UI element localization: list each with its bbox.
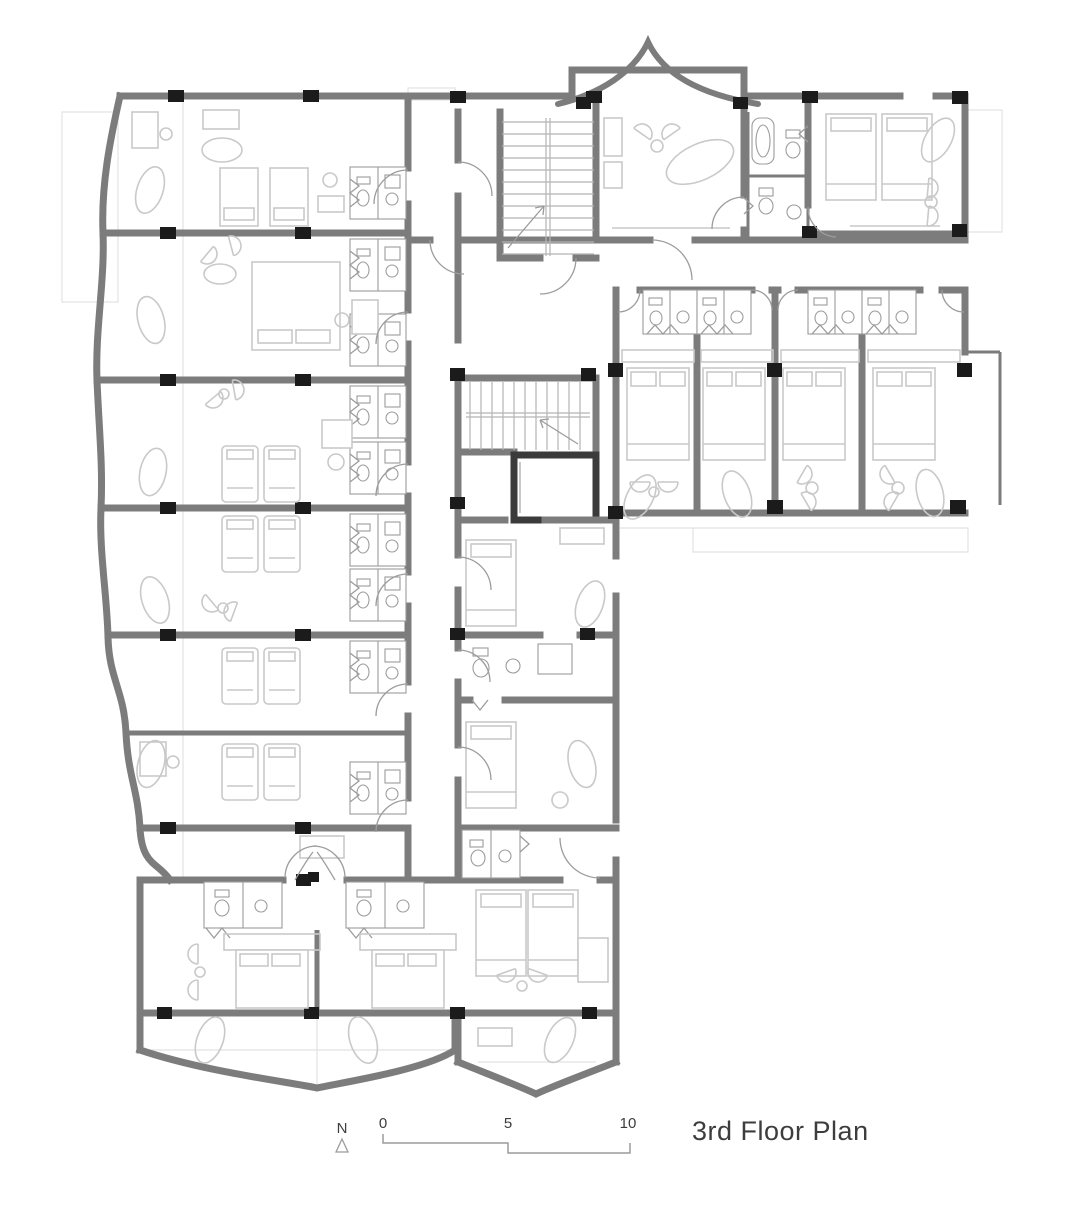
furniture-top-right-room — [826, 113, 961, 227]
stair-top — [502, 118, 594, 256]
scale-bar-line — [383, 1134, 630, 1153]
scalloped-balcony-wall-right — [458, 1062, 616, 1094]
bathroom-pods-right-wing — [643, 290, 916, 334]
furniture-right-wing-rooms — [617, 350, 960, 524]
stair-mid — [466, 382, 590, 450]
scalloped-balcony-wall-left — [140, 1050, 455, 1088]
scale-tick-5: 5 — [504, 1115, 512, 1132]
north-triangle-icon — [336, 1139, 348, 1152]
floor-plan-sheet: N 0 5 10 3rd Floor Plan — [0, 0, 1080, 1206]
north-label: N — [337, 1120, 348, 1137]
furniture-left-wing — [130, 110, 378, 858]
bathroom-pods-left-wing — [350, 167, 406, 814]
scale-tick-0: 0 — [379, 1115, 387, 1132]
elevator-shaft — [514, 455, 596, 520]
north-arrow: N — [336, 1120, 348, 1152]
scale-bar: 0 5 10 — [379, 1115, 637, 1153]
page-title: 3rd Floor Plan — [692, 1116, 869, 1146]
scale-tick-10: 10 — [620, 1115, 637, 1132]
furniture-central-rooms — [466, 528, 610, 991]
furniture-entrance-hall — [604, 118, 740, 228]
floor-plan-drawing: N 0 5 10 3rd Floor Plan — [0, 0, 1080, 1206]
bathroom-pods-top-wing — [744, 118, 808, 219]
